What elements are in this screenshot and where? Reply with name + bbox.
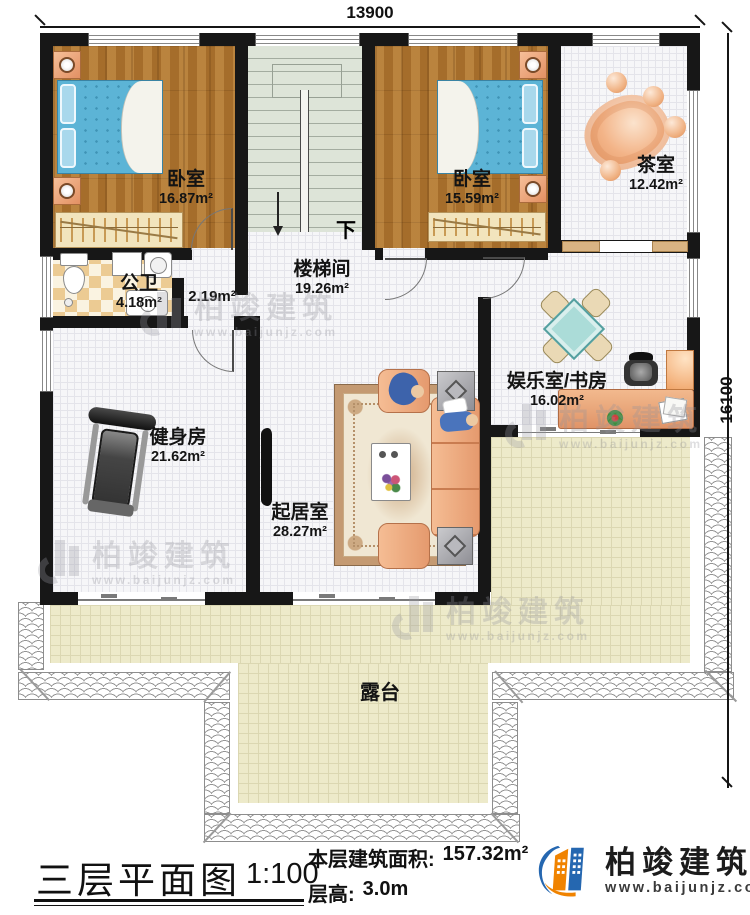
watermark-logo-icon xyxy=(140,292,184,342)
floor-area-label: 本层建筑面积: xyxy=(308,843,435,872)
watermark-text: 柏竣建筑 xyxy=(194,292,338,325)
flower-bouquet xyxy=(380,472,402,494)
dimension-tick xyxy=(34,14,45,25)
armchair xyxy=(378,523,430,569)
window-tea-top xyxy=(592,33,660,46)
dimension-width: 13900 xyxy=(320,3,420,23)
office-chair-seat xyxy=(630,363,652,381)
office-chair xyxy=(624,360,658,386)
room-name: 起居室 xyxy=(250,503,350,524)
bed-blanket xyxy=(121,81,162,173)
watermark-url: www.baijunjz.com xyxy=(92,573,236,587)
tea-room-sill-right xyxy=(652,241,688,252)
watermark-logo-icon xyxy=(505,404,549,454)
toilet-tank xyxy=(60,253,88,266)
tea-room-sill-left xyxy=(562,241,600,252)
watermark-logo-icon xyxy=(38,540,82,590)
brand-block: 柏竣建筑 www.baijunjz.com xyxy=(533,840,750,902)
person-head xyxy=(466,414,478,426)
room-area: 16.87m² xyxy=(131,191,241,208)
window-entertainment-right xyxy=(687,258,700,318)
label-bedroom1: 卧室 16.87m² xyxy=(131,170,241,208)
bed-blanket xyxy=(438,81,479,173)
dimension-tick xyxy=(694,14,705,25)
terrace-floor-right xyxy=(491,437,690,605)
watermark-logo-icon xyxy=(392,596,436,646)
label-living-room: 起居室 28.27m² xyxy=(250,503,350,541)
table-ornament xyxy=(444,535,467,558)
window-bedroom2-top xyxy=(408,33,518,46)
terrace-edge-tongue-right xyxy=(492,702,518,814)
nightstand xyxy=(53,177,81,205)
stair-rail xyxy=(300,90,309,232)
terrace-edge-tongue-left xyxy=(204,702,230,814)
lamp-icon xyxy=(59,57,75,73)
desk-corner xyxy=(666,350,694,390)
table-dot xyxy=(391,451,398,458)
room-name: 楼梯间 xyxy=(272,260,372,281)
closet-bedroom2 xyxy=(428,212,546,242)
room-name: 卧室 xyxy=(417,170,527,191)
watermark: 柏竣建筑 www.baijunjz.com xyxy=(38,540,236,590)
floor-height-label: 层高: xyxy=(308,878,355,907)
watermark: 柏竣建筑 www.baijunjz.com xyxy=(140,292,338,342)
room-name: 健身房 xyxy=(128,428,228,449)
stair-arrow-stem xyxy=(277,192,279,226)
floor-height-row: 层高: 3.0m xyxy=(308,878,408,907)
room-area: 28.27m² xyxy=(250,524,350,541)
wall-under-bedroom2-a xyxy=(375,248,383,260)
watermark-text: 柏竣建筑 xyxy=(92,540,236,573)
floor-drain xyxy=(64,298,73,307)
label-gym: 健身房 21.62m² xyxy=(128,428,228,466)
watermark-text: 柏竣建筑 xyxy=(446,596,590,629)
brand-website: www.baijunjz.com xyxy=(605,880,750,896)
floor-area-row: 本层建筑面积: 157.32m² xyxy=(308,843,528,872)
tv-panel xyxy=(261,428,272,506)
sliding-window-gym-bottom xyxy=(78,592,205,605)
terrace-edge-right-band xyxy=(492,672,734,700)
room-area: 21.62m² xyxy=(128,449,228,466)
dimension-height: 16100 xyxy=(717,365,737,435)
pillow xyxy=(522,84,538,124)
dimension-line-top xyxy=(40,26,700,28)
label-tea-room: 茶室 12.42m² xyxy=(602,156,710,194)
wall-gym-living xyxy=(246,316,260,592)
label-terrace: 露台 xyxy=(348,682,412,704)
floor-plan-canvas: 下 xyxy=(0,0,750,915)
nightstand xyxy=(53,51,81,79)
watermark-url: www.baijunjz.com xyxy=(559,437,703,451)
terrace-edge-lower-left-band xyxy=(18,672,230,700)
lamp-icon xyxy=(525,181,541,197)
room-area: 12.42m² xyxy=(602,177,710,194)
room-area: 15.59m² xyxy=(417,191,527,208)
pillow xyxy=(60,84,76,124)
terrace-edge-left xyxy=(18,602,44,670)
stair-arrow-head xyxy=(273,226,283,236)
tea-stool xyxy=(664,116,686,138)
tea-stool xyxy=(606,72,627,93)
table-dot xyxy=(379,451,386,458)
tea-stool xyxy=(643,86,664,107)
window-bathroom-left xyxy=(40,256,53,318)
room-name: 娱乐室/书房 xyxy=(489,372,625,393)
stair-down-label: 下 xyxy=(336,220,356,242)
tea-room-opening xyxy=(600,241,652,252)
lamp-icon xyxy=(525,57,541,73)
wall-stair-bedroom2 xyxy=(362,33,375,250)
label-bedroom2: 卧室 15.59m² xyxy=(417,170,527,208)
coffee-table xyxy=(371,443,411,501)
lamp-icon xyxy=(59,183,75,199)
floor-height-value: 3.0m xyxy=(363,878,409,907)
terrace-edge-bottom-band xyxy=(204,814,520,842)
floor-area-value: 157.32m² xyxy=(443,843,529,872)
room-name: 露台 xyxy=(348,682,412,704)
watermark: 柏竣建筑 www.baijunjz.com xyxy=(505,404,703,454)
sink-basin xyxy=(150,257,167,274)
watermark: 柏竣建筑 www.baijunjz.com xyxy=(392,596,590,646)
brand-name: 柏竣建筑 xyxy=(605,846,750,880)
person-head xyxy=(411,385,424,398)
closet-bedroom1 xyxy=(55,212,183,248)
wall-bedroom1-stair xyxy=(235,33,248,250)
drawing-title: 三层平面图 xyxy=(36,850,241,904)
title-underline xyxy=(34,899,304,906)
room-name: 卧室 xyxy=(131,170,241,191)
watermark-text: 柏竣建筑 xyxy=(559,404,703,437)
watermark-url: www.baijunjz.com xyxy=(194,325,338,339)
pillow xyxy=(522,128,538,168)
nightstand xyxy=(519,51,547,79)
wall-bedroom2-tea xyxy=(548,33,561,253)
window-gym-left xyxy=(40,330,53,392)
brand-logo-icon xyxy=(533,840,595,902)
watermark-url: www.baijunjz.com xyxy=(446,629,590,643)
dimension-tick xyxy=(721,21,732,32)
window-bedroom1-top xyxy=(88,33,200,46)
side-table xyxy=(437,527,473,565)
terrace-floor-band xyxy=(50,605,690,663)
room-name: 茶室 xyxy=(602,156,710,177)
pillow xyxy=(60,128,76,168)
window-stair-top xyxy=(255,33,360,46)
